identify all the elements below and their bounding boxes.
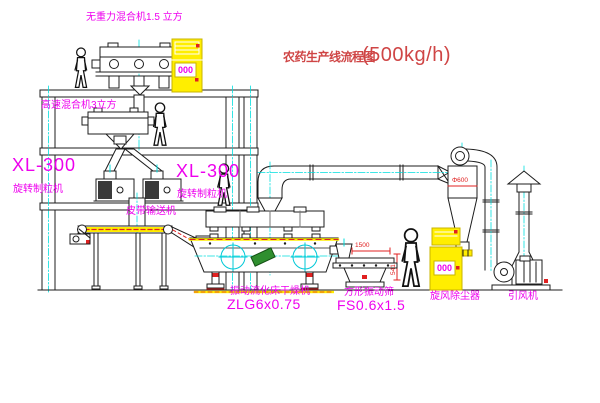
granulator-left [94, 149, 136, 201]
flow-diagram-canvas: 农药生产线流程图 (500kg/h) 无重力混合机1.5 立方 高速混合机3立方… [0, 0, 600, 403]
person-figure [402, 229, 419, 286]
granulator-right-name: 旋转制粒机 [177, 190, 227, 200]
cabinet1-display: 000 [178, 66, 193, 75]
granulator-right-model: XL-300 [176, 162, 240, 180]
cyclone-name-label: 旋风除尘器 [430, 292, 480, 302]
granulator-left-name: 旋转制粒机 [13, 185, 63, 195]
granulator-left-model: XL-300 [12, 156, 76, 174]
diagram-title-capacity: (500kg/h) [362, 45, 451, 65]
mixer-2 [82, 108, 154, 149]
control-cabinet-2 [430, 228, 462, 290]
person-figure [154, 103, 166, 145]
dryer-model-label: ZLG6x0.75 [227, 297, 301, 311]
fluid-bed-dryer [190, 207, 342, 289]
person-figure [75, 48, 87, 87]
mixer-mid-label: 高速混合机3立方 [41, 101, 117, 111]
sieve-model-label: FS0.6x1.5 [337, 298, 405, 312]
induced-draft-fan [492, 256, 550, 290]
mixer-top-label: 无重力混合机1.5 立方 [86, 13, 183, 23]
sieve-height-dim: 541 [391, 264, 398, 275]
fan-name-label: 引风机 [508, 292, 538, 302]
cabinet2-display: 000 [437, 264, 452, 273]
cyclone-diameter-dim: Φ600 [452, 178, 468, 185]
belt-conveyor-label: 皮带输送机 [126, 207, 176, 217]
sieve-width-dim: 1500 [355, 243, 369, 250]
riser-pipe [483, 160, 499, 272]
